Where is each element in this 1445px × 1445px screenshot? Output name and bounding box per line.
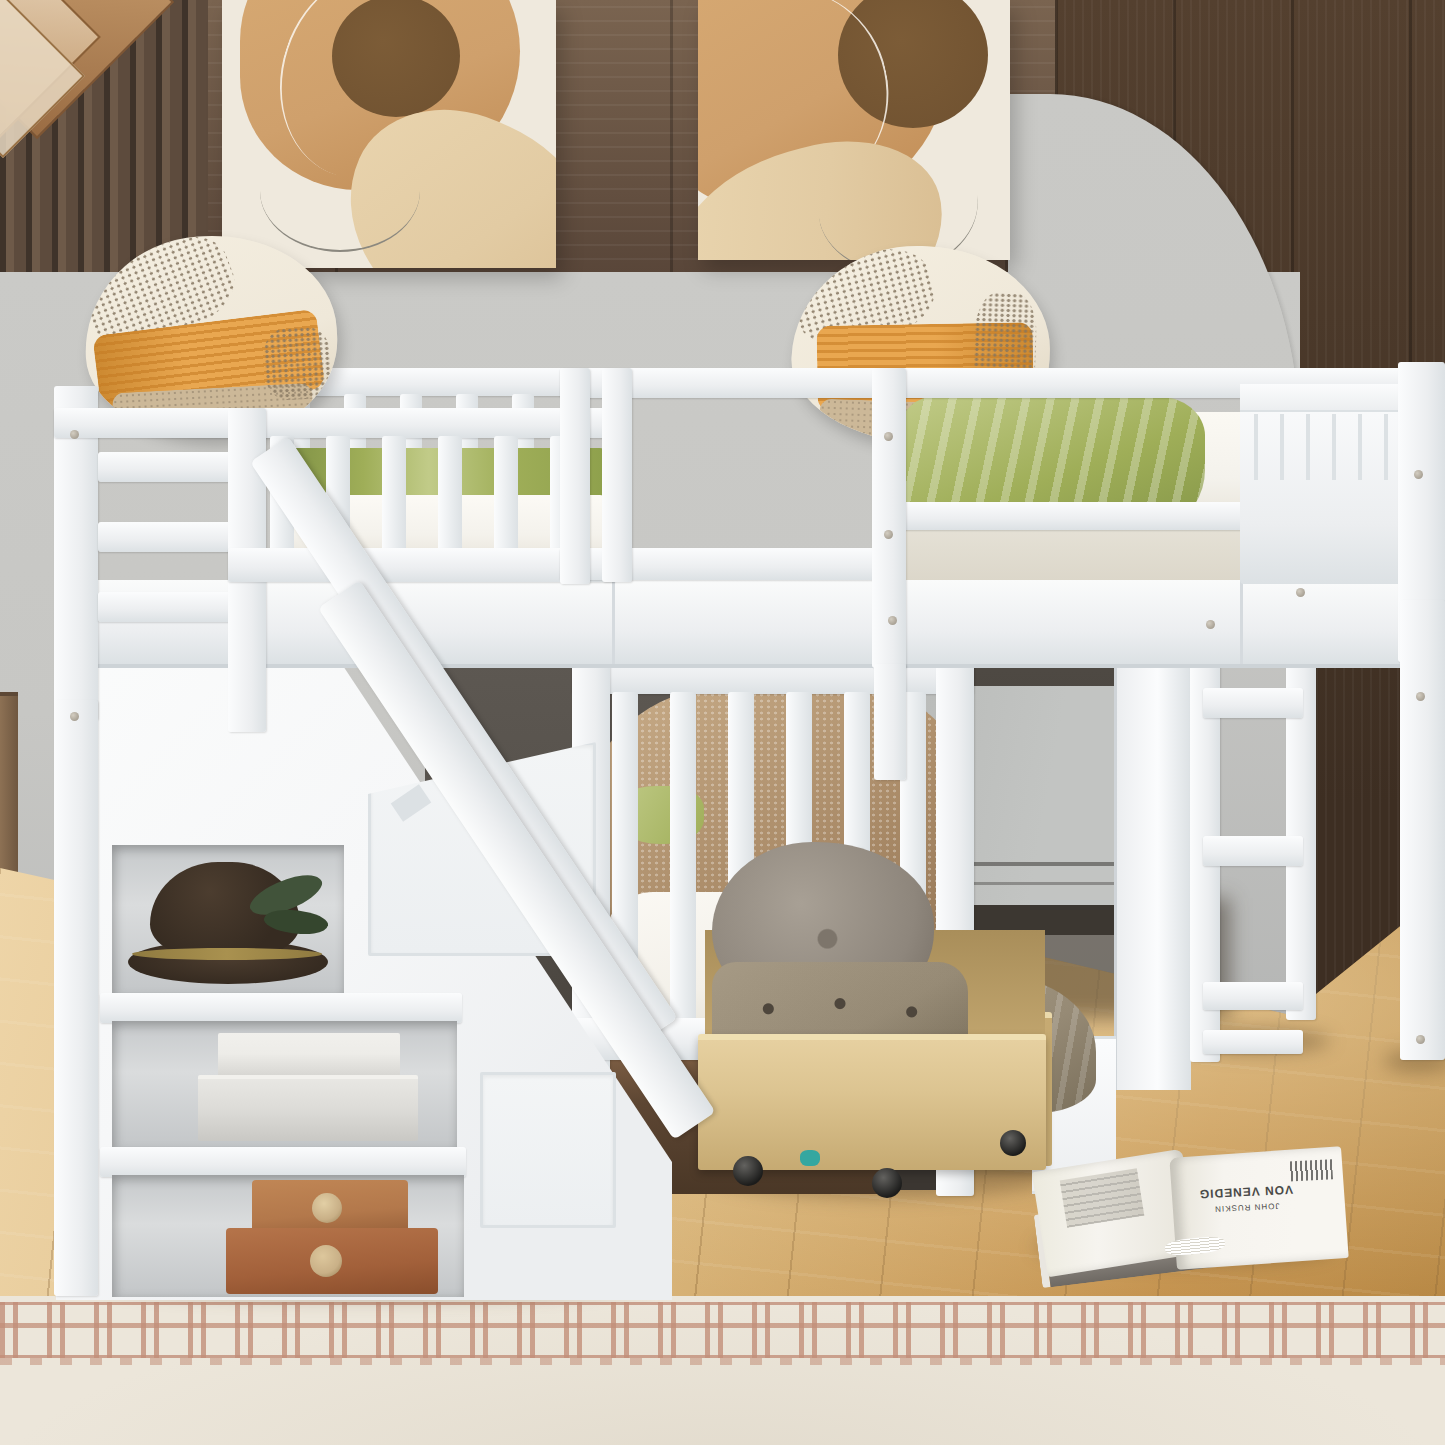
screw-cap: [70, 712, 79, 721]
screw-cap: [884, 432, 893, 441]
guardrail-bottom-rail: [228, 548, 616, 582]
headboard-grooves: [1254, 414, 1404, 480]
side-cabinet: [1114, 596, 1191, 1090]
screw-cap: [884, 530, 893, 539]
dresser-edge: [0, 692, 18, 881]
stair-panel-recess: [480, 1072, 616, 1228]
pendant-lamp: [0, 0, 240, 160]
headboard-bar: [98, 452, 232, 482]
white-box-stack: [112, 1021, 457, 1149]
unit-left-front-post: [54, 700, 98, 1296]
screw-cap: [1414, 470, 1423, 479]
open-book: JOHN RUSKIN VON VENEDIG: [1023, 1140, 1353, 1270]
teal-toy: [800, 1150, 820, 1166]
footboard-slat: [670, 692, 696, 1022]
guardrail-spindle: [494, 436, 518, 554]
ladder-rung: [1203, 1030, 1303, 1054]
screw-cap: [888, 616, 897, 625]
fascia-seam: [612, 580, 615, 664]
guardrail-spindle: [438, 436, 462, 554]
book-title-block: JOHN RUSKIN VON VENEDIG: [1186, 1180, 1307, 1216]
hat-brass-band: [132, 948, 322, 960]
loft-corner-leg: [1400, 600, 1445, 1060]
guardrail-spindle: [382, 436, 406, 554]
screw-cap: [70, 430, 79, 439]
wall-art-right: [698, 0, 1010, 260]
screw-cap: [1206, 620, 1215, 629]
headboard-bar: [98, 592, 232, 622]
loft-post: [560, 368, 590, 584]
paint-gray-curve: [260, 130, 420, 252]
screw-cap: [1416, 692, 1425, 701]
caster-wheel: [733, 1156, 763, 1186]
case-clasp: [310, 1245, 342, 1277]
leather-case-stack: [112, 1175, 464, 1297]
guardrail-top-rail: [54, 408, 614, 438]
fascia-seam: [1240, 580, 1243, 664]
ladder-rung: [1203, 836, 1303, 866]
ladder-rung: [1203, 688, 1303, 718]
caster-wheel: [872, 1168, 902, 1198]
screw-cap: [1296, 588, 1305, 597]
book-group: JOHN RUSKIN VON VENEDIG: [1015, 1138, 1355, 1288]
near-drawer-front: [698, 1034, 1046, 1170]
case-clasp: [312, 1193, 342, 1223]
ladder-rung: [1203, 982, 1303, 1010]
bedroom-photo: JOHN RUSKIN VON VENEDIG: [0, 0, 1445, 1445]
stair-shelf: [100, 993, 462, 1023]
page-barcode: [1288, 1159, 1333, 1181]
headboard-bar: [98, 522, 232, 552]
stair-shelf: [100, 1147, 466, 1177]
hat-with-leaves: [118, 852, 344, 992]
area-rug: [0, 1296, 1445, 1445]
screw-cap: [1416, 1035, 1425, 1044]
white-box-bottom: [198, 1075, 418, 1141]
loft-leg: [874, 664, 906, 780]
wall-art-left: [222, 0, 556, 268]
rug-dash-row: [0, 1358, 1445, 1365]
rug-meander-border: [0, 1302, 1445, 1358]
loft-post: [602, 368, 632, 582]
